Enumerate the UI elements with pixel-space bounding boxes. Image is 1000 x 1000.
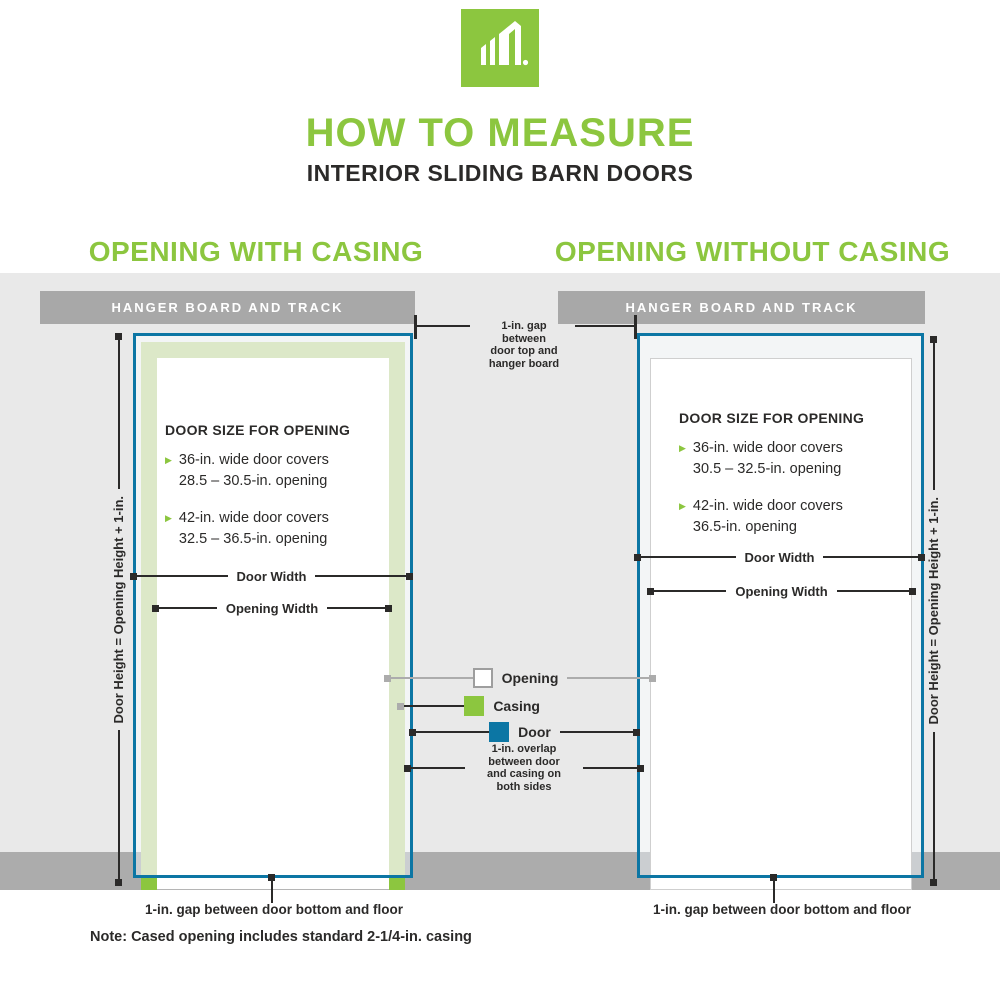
measure-line xyxy=(933,343,935,490)
gap-measure-cap-left xyxy=(414,315,417,339)
bullet-line: 36-in. wide door covers xyxy=(179,452,329,468)
door-size-heading-left: DOOR SIZE FOR OPENING xyxy=(165,422,397,438)
opening-width-measure-left: Opening Width xyxy=(152,600,392,616)
door-size-info-left: DOOR SIZE FOR OPENING ▶ 36-in. wide door… xyxy=(165,422,397,566)
masonite-logo xyxy=(461,9,539,87)
top-gap-annotation: 1-in. gap between door top and hanger bo… xyxy=(455,320,593,370)
measure-endpoint xyxy=(918,554,925,561)
masonite-m-icon xyxy=(461,9,539,87)
measure-endpoint xyxy=(130,573,137,580)
leader-line xyxy=(567,677,649,679)
leader-endpoint xyxy=(770,874,777,881)
floor-gap-label-left: 1-in. gap between door bottom and floor xyxy=(114,902,434,917)
infographic-page: HOW TO MEASURE INTERIOR SLIDING BARN DOO… xyxy=(0,0,1000,1000)
door-height-label: Door Height = Opening Height + 1-in. xyxy=(111,489,126,731)
measure-line xyxy=(118,340,120,489)
leader-line xyxy=(404,705,464,707)
bullet-item: ▶ 42-in. wide door covers 36.5-in. openi… xyxy=(679,496,911,538)
bullet-text: 42-in. wide door covers 32.5 – 36.5-in. … xyxy=(179,508,329,550)
measure-endpoint xyxy=(930,336,937,343)
legend-label-opening: Opening xyxy=(502,670,568,686)
leader-endpoint xyxy=(268,874,275,881)
measure-line xyxy=(654,590,726,592)
bullet-line: 42-in. wide door covers xyxy=(179,510,329,526)
hanger-board-right: HANGER BOARD AND TRACK xyxy=(558,291,925,324)
overlap-annotation-row: 1-in. overlap between door and casing on… xyxy=(404,744,644,792)
door-width-measure-left: Door Width xyxy=(130,568,413,584)
annotation-line: door top and xyxy=(490,345,557,357)
door-size-info-right: DOOR SIZE FOR OPENING ▶ 36-in. wide door… xyxy=(679,410,911,554)
leader-endpoint xyxy=(404,765,411,772)
measure-line xyxy=(137,575,228,577)
floor-gap-label-right: 1-in. gap between door bottom and floor xyxy=(622,902,942,917)
door-height-measure-left: Door Height = Opening Height + 1-in. xyxy=(112,333,125,886)
leader-endpoint xyxy=(637,765,644,772)
bullet-arrow-icon: ▶ xyxy=(165,508,172,550)
measure-line xyxy=(118,730,120,879)
bullet-arrow-icon: ▶ xyxy=(679,438,686,480)
bullet-arrow-icon: ▶ xyxy=(165,450,172,492)
casing-exposed-bottom-left xyxy=(141,878,157,890)
leader-line xyxy=(271,881,273,903)
measure-endpoint xyxy=(385,605,392,612)
measure-endpoint xyxy=(909,588,916,595)
opening-width-label: Opening Width xyxy=(726,584,836,599)
leader-line xyxy=(411,767,465,769)
page-title: HOW TO MEASURE xyxy=(0,111,1000,156)
opening-width-label: Opening Width xyxy=(217,601,327,616)
measure-endpoint xyxy=(647,588,654,595)
section-title-without-casing: OPENING WITHOUT CASING xyxy=(505,236,1000,268)
casing-note: Note: Cased opening includes standard 2-… xyxy=(90,929,472,945)
measure-line xyxy=(641,556,736,558)
measure-line xyxy=(823,556,918,558)
door-width-label: Door Width xyxy=(228,569,316,584)
measure-endpoint xyxy=(115,879,122,886)
bullet-line: 30.5 – 32.5-in. opening xyxy=(693,461,841,477)
annotation-line: 1-in. gap xyxy=(501,320,546,332)
bullet-item: ▶ 42-in. wide door covers 32.5 – 36.5-in… xyxy=(165,508,397,550)
annotation-line: between door xyxy=(488,756,560,768)
measure-endpoint xyxy=(406,573,413,580)
measure-endpoint xyxy=(152,605,159,612)
measure-line xyxy=(315,575,406,577)
bullet-line: 36.5-in. opening xyxy=(693,519,797,535)
measure-endpoint xyxy=(634,554,641,561)
measure-line xyxy=(837,590,909,592)
hanger-board-left: HANGER BOARD AND TRACK xyxy=(40,291,415,324)
measure-endpoint xyxy=(115,333,122,340)
bullet-text: 42-in. wide door covers 36.5-in. opening xyxy=(693,496,843,538)
bullet-text: 36-in. wide door covers 30.5 – 32.5-in. … xyxy=(693,438,843,480)
bullet-item: ▶ 36-in. wide door covers 28.5 – 30.5-in… xyxy=(165,450,397,492)
leader-line xyxy=(583,767,637,769)
casing-swatch xyxy=(464,696,484,716)
leader-line xyxy=(773,881,775,903)
legend-row-door: Door xyxy=(409,722,640,742)
bullet-line: 42-in. wide door covers xyxy=(693,498,843,514)
overlap-annotation: 1-in. overlap between door and casing on… xyxy=(465,743,583,793)
legend-label-door: Door xyxy=(518,724,560,740)
leader-endpoint xyxy=(649,675,656,682)
annotation-line: hanger board xyxy=(489,358,559,370)
gap-measure-cap-right xyxy=(634,315,637,339)
bullet-line: 32.5 – 36.5-in. opening xyxy=(179,531,327,547)
legend-label-casing: Casing xyxy=(493,698,549,714)
door-width-measure-right: Door Width xyxy=(634,549,925,565)
measure-endpoint xyxy=(930,879,937,886)
opening-width-measure-right: Opening Width xyxy=(647,583,916,599)
door-swatch xyxy=(489,722,509,742)
door-height-measure-right: Door Height = Opening Height + 1-in. xyxy=(927,336,940,886)
opening-swatch xyxy=(473,668,493,688)
bullet-arrow-icon: ▶ xyxy=(679,496,686,538)
leader-line xyxy=(416,731,489,733)
door-width-label: Door Width xyxy=(736,550,824,565)
leader-line xyxy=(560,731,633,733)
annotation-line: 1-in. overlap xyxy=(492,743,557,755)
door-height-label: Door Height = Opening Height + 1-in. xyxy=(926,490,941,732)
bullet-line: 28.5 – 30.5-in. opening xyxy=(179,473,327,489)
casing-exposed-bottom-right xyxy=(389,878,405,890)
leader-endpoint xyxy=(633,729,640,736)
section-title-with-casing: OPENING WITH CASING xyxy=(0,236,512,268)
bullet-line: 36-in. wide door covers xyxy=(693,440,843,456)
leader-endpoint xyxy=(384,675,391,682)
bullet-text: 36-in. wide door covers 28.5 – 30.5-in. … xyxy=(179,450,329,492)
leader-endpoint xyxy=(409,729,416,736)
bullet-item: ▶ 36-in. wide door covers 30.5 – 32.5-in… xyxy=(679,438,911,480)
leader-endpoint xyxy=(397,703,404,710)
page-subtitle: INTERIOR SLIDING BARN DOORS xyxy=(0,160,1000,187)
measure-line xyxy=(159,607,217,609)
annotation-line: and casing on xyxy=(487,768,561,780)
leader-line xyxy=(391,677,473,679)
door-size-heading-right: DOOR SIZE FOR OPENING xyxy=(679,410,911,426)
annotation-line: between xyxy=(502,333,546,345)
legend-row-casing: Casing xyxy=(397,696,549,716)
measure-line xyxy=(933,732,935,879)
legend-row-opening: Opening xyxy=(384,668,656,688)
measure-line xyxy=(327,607,385,609)
annotation-line: both sides xyxy=(496,781,551,793)
